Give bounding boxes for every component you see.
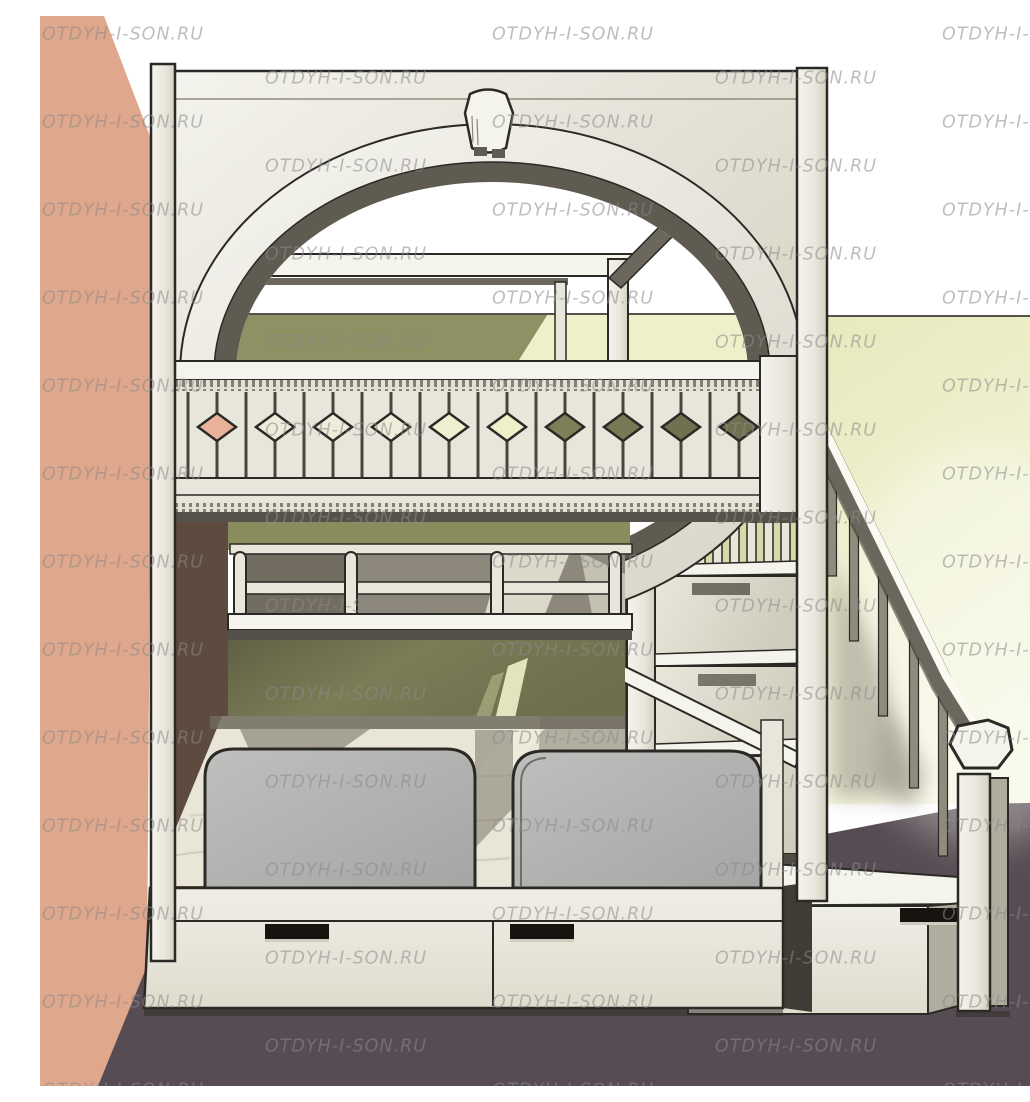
watermark-text: OTDYH-I-SON.RU: [42, 641, 204, 661]
watermark-text: OTDYH-I-SON.RU: [42, 465, 204, 485]
watermark-text: OTDYH-I-SON.RU: [492, 993, 654, 1013]
watermark-text: OTDYH-I-SON.RU: [715, 861, 877, 881]
watermark-text: OTDYH-I-SON.RU: [265, 773, 427, 793]
watermark-text: OTDYH-I-SON.RU: [942, 641, 1030, 661]
watermark-text: OTDYH-I-SON.RU: [492, 729, 654, 749]
watermark-text: OTDYH-I-SON.RU: [265, 333, 427, 353]
bunk-bed-render: OTDYH-I-SON.RUOTDYH-I-SON.RUOTDYH-I-SON.…: [40, 16, 1030, 1086]
watermark-text: OTDYH-I-SON.RU: [942, 817, 1030, 837]
watermark-text: OTDYH-I-SON.RU: [715, 685, 877, 705]
watermark-text: OTDYH-I-SON.RU: [715, 1037, 877, 1057]
shelf-mid-rail: [246, 582, 610, 594]
watermark-text: OTDYH-I-SON.RU: [492, 25, 654, 45]
watermark-text: OTDYH-I-SON.RU: [265, 685, 427, 705]
watermark-text: OTDYH-I-SON.RU: [492, 1081, 654, 1087]
watermark-text: OTDYH-I-SON.RU: [715, 421, 877, 441]
watermark-text: OTDYH-I-SON.RU: [715, 773, 877, 793]
watermark-text: OTDYH-I-SON.RU: [42, 113, 204, 133]
watermark-text: OTDYH-I-SON.RU: [942, 465, 1030, 485]
watermark-text: OTDYH-I-SON.RU: [492, 289, 654, 309]
watermark-text: OTDYH-I-SON.RU: [265, 245, 427, 265]
fence-slat: [764, 522, 773, 567]
watermark-text: OTDYH-I-SON.RU: [42, 553, 204, 573]
watermark-text: OTDYH-I-SON.RU: [942, 905, 1030, 925]
watermark-text: OTDYH-I-SON.RU: [942, 377, 1030, 397]
watermark-text: OTDYH-I-SON.RU: [265, 861, 427, 881]
keystone-seam: [492, 149, 505, 158]
watermark-text: OTDYH-I-SON.RU: [42, 729, 204, 749]
watermark-text: OTDYH-I-SON.RU: [715, 597, 877, 617]
drawer-handle-lip: [265, 939, 329, 942]
watermark-text: OTDYH-I-SON.RU: [42, 289, 204, 309]
bed-base: [144, 888, 783, 1008]
watermark-text: OTDYH-I-SON.RU: [942, 729, 1030, 749]
watermark-text: OTDYH-I-SON.RU: [42, 25, 204, 45]
keystone-seam: [474, 147, 487, 156]
watermark-text: OTDYH-I-SON.RU: [942, 289, 1030, 309]
drawer-handle-lip: [510, 939, 574, 942]
fence-slat: [781, 522, 790, 567]
watermark-text: OTDYH-I-SON.RU: [942, 993, 1030, 1013]
watermark-text: OTDYH-I-SON.RU: [715, 949, 877, 969]
shelf-board-shadow: [228, 630, 632, 640]
watermark-text: OTDYH-I-SON.RU: [942, 553, 1030, 573]
watermark-text: OTDYH-I-SON.RU: [942, 25, 1030, 45]
newel-side: [990, 778, 1008, 1006]
step-1-handle: [692, 583, 750, 595]
balustrade-trim: [175, 380, 802, 391]
watermark-text: OTDYH-I-SON.RU: [265, 157, 427, 177]
watermark-text: OTDYH-I-SON.RU: [715, 69, 877, 89]
watermark-text: OTDYH-I-SON.RU: [265, 1037, 427, 1057]
watermark-text: OTDYH-I-SON.RU: [265, 421, 427, 441]
watermark-text: OTDYH-I-SON.RU: [492, 465, 654, 485]
watermark-text: OTDYH-I-SON.RU: [492, 905, 654, 925]
fence-slat: [747, 522, 756, 567]
watermark-text: OTDYH-I-SON.RU: [265, 509, 427, 529]
lower-bed: [144, 716, 812, 1016]
salmon-side-wall: [40, 16, 153, 1086]
watermark-text: OTDYH-I-SON.RU: [42, 993, 204, 1013]
watermark-text: OTDYH-I-SON.RU: [942, 113, 1030, 133]
watermark-text: OTDYH-I-SON.RU: [265, 69, 427, 89]
watermark-text: OTDYH-I-SON.RU: [492, 377, 654, 397]
watermark-text: OTDYH-I-SON.RU: [942, 201, 1030, 221]
newel-front: [958, 774, 990, 1011]
watermark-text: OTDYH-I-SON.RU: [715, 333, 877, 353]
watermark-text: OTDYH-I-SON.RU: [492, 113, 654, 133]
watermark-text: OTDYH-I-SON.RU: [265, 597, 427, 617]
drawer-handle-left: [265, 924, 329, 939]
watermark-text: OTDYH-I-SON.RU: [715, 509, 877, 529]
watermark-text: OTDYH-I-SON.RU: [42, 377, 204, 397]
watermark-text: OTDYH-I-SON.RU: [492, 553, 654, 573]
watermark-text: OTDYH-I-SON.RU: [42, 817, 204, 837]
watermark-text: OTDYH-I-SON.RU: [715, 157, 877, 177]
watermark-text: OTDYH-I-SON.RU: [42, 1081, 204, 1087]
watermark-text: OTDYH-I-SON.RU: [942, 1081, 1030, 1087]
watermark-text: OTDYH-I-SON.RU: [265, 949, 427, 969]
watermark-text: OTDYH-I-SON.RU: [42, 905, 204, 925]
shelf-divider: [234, 552, 246, 618]
drawer-handle-right: [510, 924, 574, 939]
render-canvas: OTDYH-I-SON.RUOTDYH-I-SON.RUOTDYH-I-SON.…: [40, 16, 1030, 1086]
watermark-text: OTDYH-I-SON.RU: [715, 245, 877, 265]
watermark-text: OTDYH-I-SON.RU: [492, 201, 654, 221]
watermark-text: OTDYH-I-SON.RU: [492, 641, 654, 661]
watermark-text: OTDYH-I-SON.RU: [42, 201, 204, 221]
base-floor-shadow: [144, 1008, 783, 1016]
watermark-text: OTDYH-I-SON.RU: [492, 817, 654, 837]
